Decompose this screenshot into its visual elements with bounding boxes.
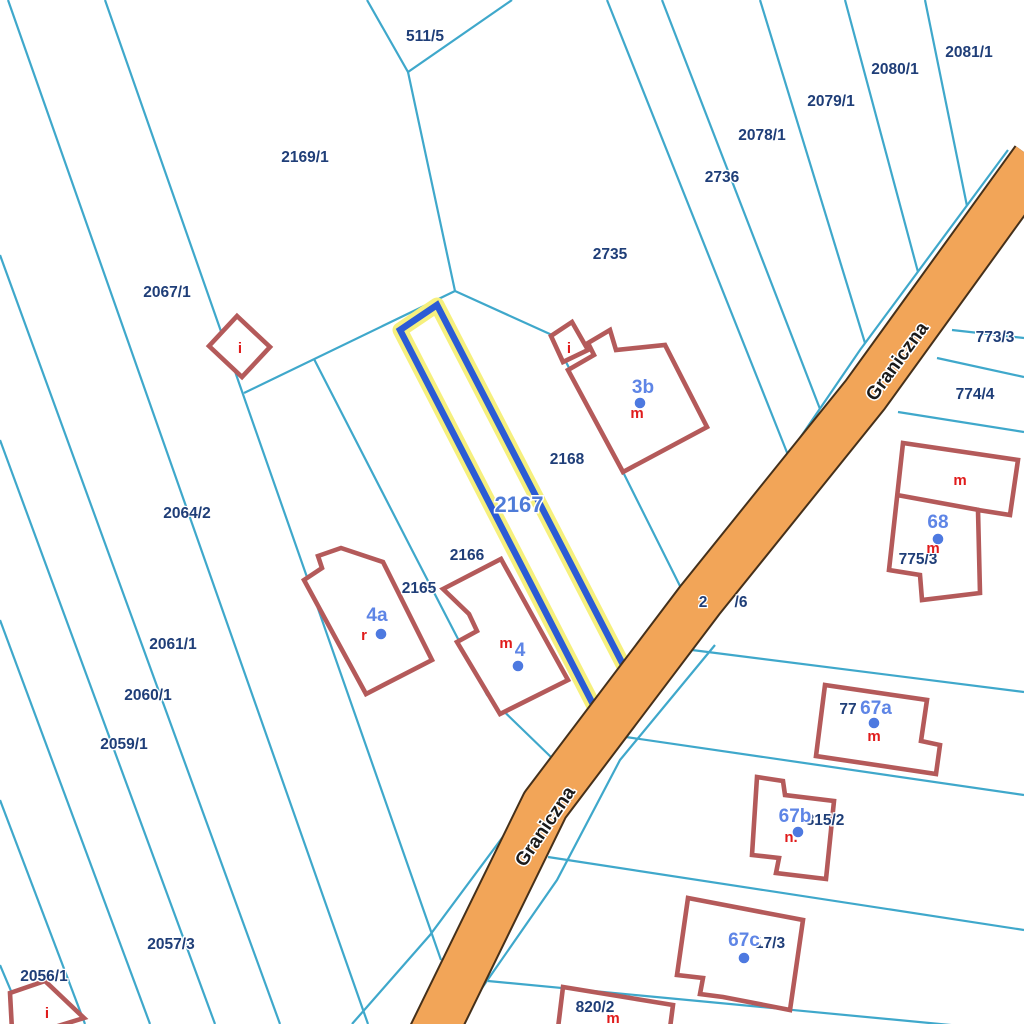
building-outline-68: [889, 443, 1018, 600]
building-number-label: 4a: [366, 605, 388, 626]
building-type-label: i: [238, 340, 242, 357]
building-number-label: 67b: [779, 806, 812, 827]
parcel-label: 2060/1: [124, 687, 172, 704]
parcel-boundary-line: [105, 0, 441, 960]
parcel-label: 2081/1: [945, 44, 993, 61]
parcel-boundary-line: [898, 412, 1024, 432]
parcel-label: 2166: [450, 547, 485, 564]
building-type-label: i: [567, 340, 571, 357]
parcel-boundary-line: [845, 0, 918, 272]
parcel-label: 2169/1: [281, 149, 329, 166]
parcel-label: 2736: [705, 169, 740, 186]
building-type-label: i: [45, 1005, 49, 1022]
parcel-boundary-line: [662, 0, 820, 409]
building-type-label: m: [926, 540, 939, 557]
cadastral-map: 511/5 2169/1 2067/1 2064/2 2061/1 2060/1…: [0, 0, 1024, 1024]
building-type-label: m: [953, 472, 966, 489]
parcel-boundary-line: [925, 0, 967, 206]
parcel-label-partial: /6: [735, 594, 748, 611]
building-type-label: m: [606, 1010, 619, 1024]
parcel-label: 2168: [550, 451, 585, 468]
highlighted-parcel-label: 2167: [495, 492, 544, 517]
building-type-label: m: [867, 728, 880, 745]
building-type-label: n.: [784, 829, 797, 846]
parcel-label: 2057/3: [147, 936, 195, 953]
building-number-label: 4: [515, 640, 526, 661]
parcel-label: 815/2: [806, 812, 845, 829]
parcel-label: 511/5: [406, 28, 444, 45]
parcel-label: 2079/1: [807, 93, 855, 110]
map-viewport[interactable]: 511/5 2169/1 2067/1 2064/2 2061/1 2060/1…: [0, 0, 1024, 1024]
address-point-icon: [738, 952, 751, 965]
building-number-label: 68: [927, 512, 948, 533]
parcel-label: 2067/1: [143, 284, 191, 301]
parcel-label: 2165: [402, 580, 437, 597]
building-number-label: 3b: [632, 377, 654, 398]
building-number-label: 67c: [728, 930, 760, 951]
address-point-icon: [375, 628, 388, 641]
parcel-label: 774/4: [956, 386, 995, 403]
parcel-label: 773/3: [976, 329, 1015, 346]
parcel-label: 2064/2: [163, 505, 210, 522]
parcel-label-partial: 77: [839, 701, 856, 718]
building-type-label: m: [630, 405, 643, 422]
parcel-label: 2080/1: [871, 61, 919, 78]
parcel-label: 2078/1: [738, 127, 786, 144]
building-type-label: r: [361, 627, 367, 644]
parcel-label: 2059/1: [100, 736, 148, 753]
parcel-label: 2061/1: [149, 636, 197, 653]
parcel-label: 2056/1: [20, 968, 68, 985]
parcel-label-partial: 2: [699, 594, 708, 611]
building-type-label: m: [499, 635, 512, 652]
parcel-boundary-line: [937, 358, 1024, 377]
parcel-boundary-line: [692, 650, 1024, 692]
parcel-boundary-line: [0, 620, 150, 1024]
address-point-icon: [512, 660, 525, 673]
parcel-label: 2735: [593, 246, 628, 263]
